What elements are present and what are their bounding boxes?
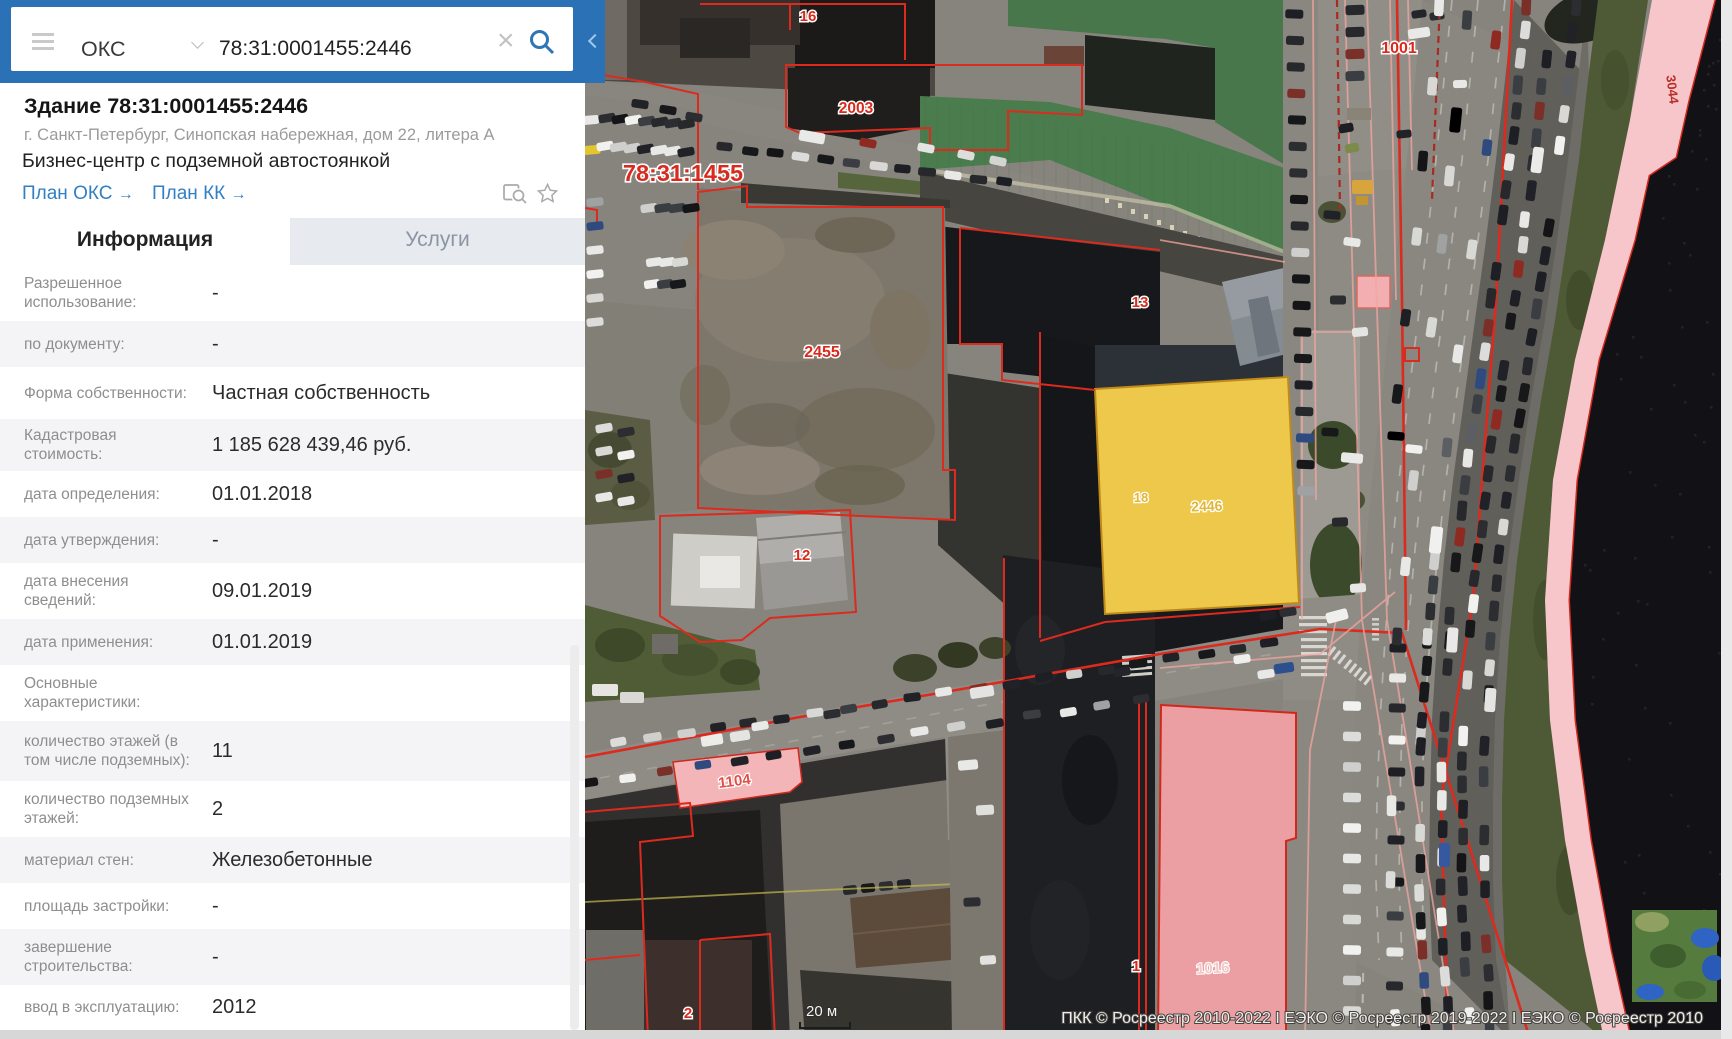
svg-text:2003: 2003 <box>839 100 874 117</box>
svg-text:ПКК © Росреестр 2010-2022 I ЕЭ: ПКК © Росреестр 2010-2022 I ЕЭКО © Росре… <box>1061 1010 1703 1027</box>
svg-text:2446: 2446 <box>1191 497 1223 514</box>
svg-text:1016: 1016 <box>1196 959 1230 978</box>
svg-text:13: 13 <box>1132 294 1149 311</box>
svg-text:2: 2 <box>684 1005 692 1022</box>
svg-text:2455: 2455 <box>804 344 840 361</box>
svg-text:20 м: 20 м <box>806 1003 837 1020</box>
svg-text:16: 16 <box>800 8 817 25</box>
svg-text:1: 1 <box>1132 958 1140 975</box>
svg-text:18: 18 <box>1134 490 1148 505</box>
svg-text:78:31:1455: 78:31:1455 <box>623 160 743 186</box>
svg-text:12: 12 <box>794 547 811 564</box>
svg-text:1001: 1001 <box>1381 40 1417 57</box>
